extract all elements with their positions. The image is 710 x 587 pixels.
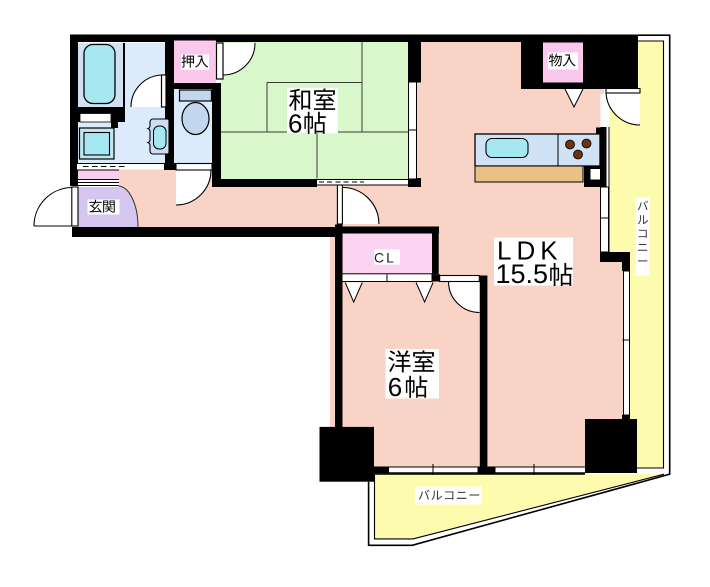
svg-text:6: 6 xyxy=(288,108,302,138)
svg-text:6: 6 xyxy=(388,372,402,402)
svg-text:CL: CL xyxy=(374,250,396,266)
svg-text:15.5: 15.5 xyxy=(496,259,549,289)
